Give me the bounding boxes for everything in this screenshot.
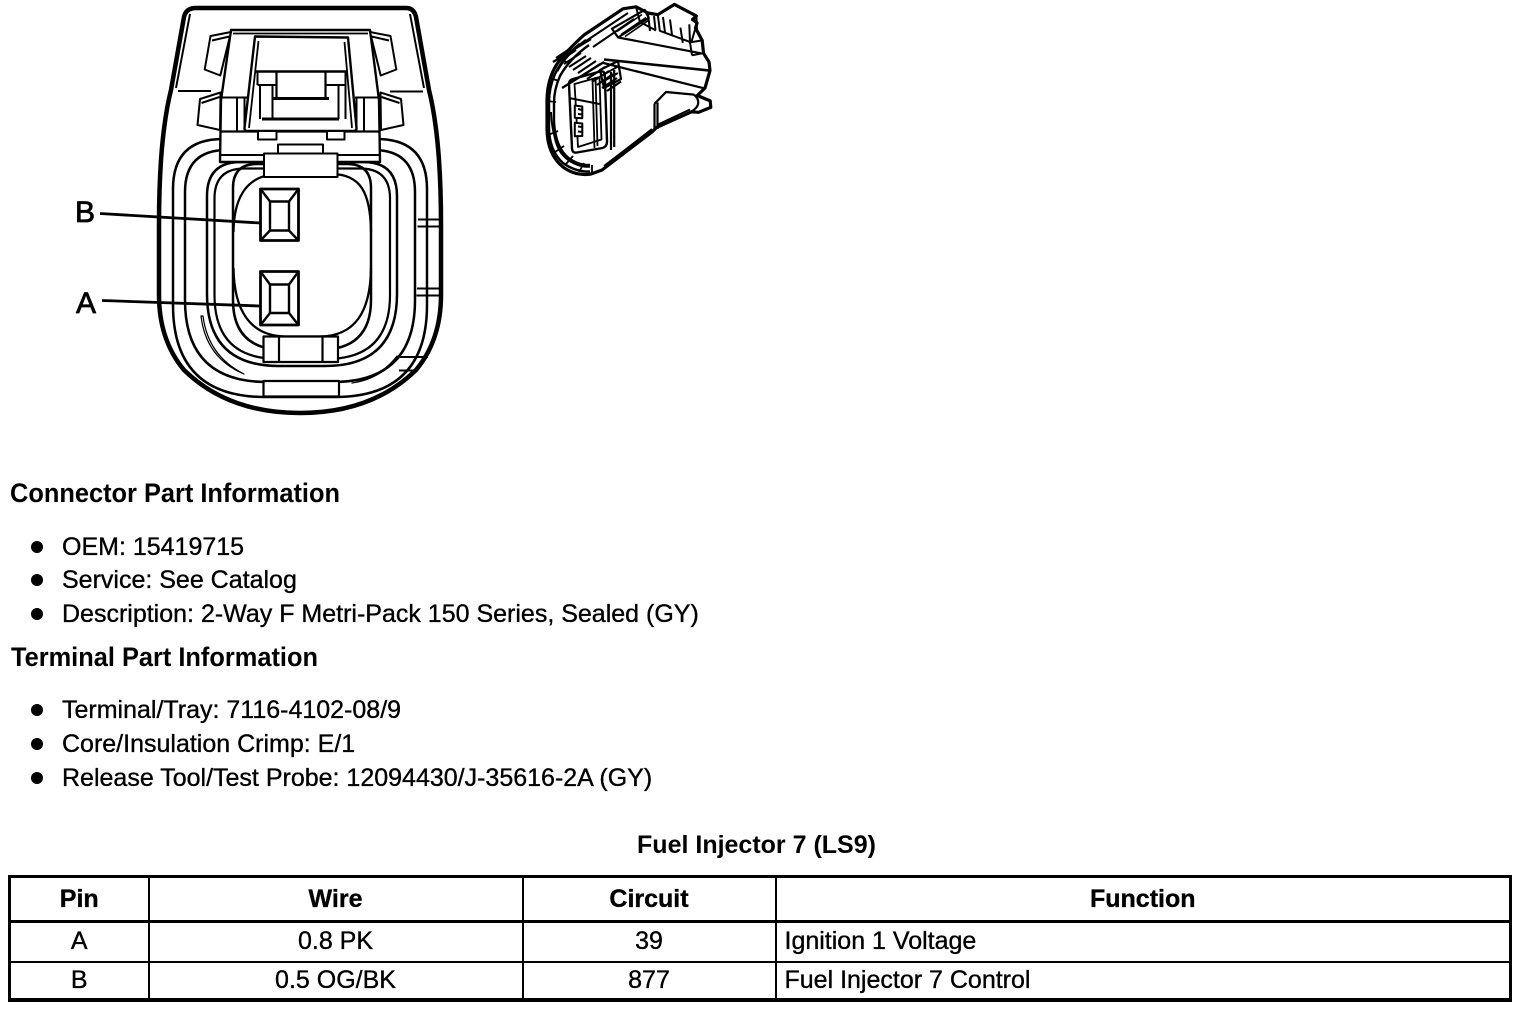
svg-text:B: B xyxy=(75,196,95,229)
svg-text:A: A xyxy=(76,287,96,320)
